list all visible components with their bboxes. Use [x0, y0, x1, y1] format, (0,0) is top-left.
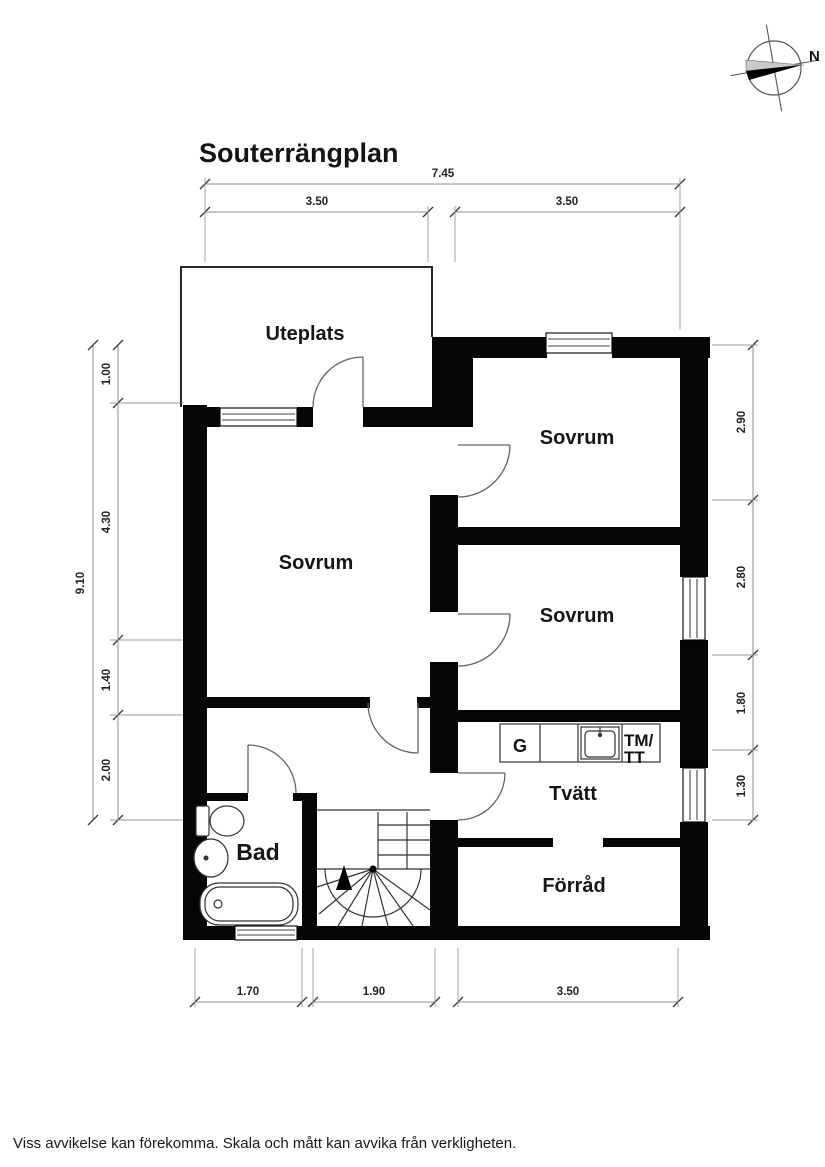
wall-segment: [458, 527, 680, 545]
wall-segment: [680, 337, 708, 577]
wall-segment: [432, 337, 547, 358]
stairs-winders: [317, 866, 430, 927]
window-uteplats: [220, 408, 297, 426]
dim-bottom-seg-2: 1.90: [363, 986, 385, 998]
wall-segment: [680, 640, 708, 768]
dim-right-seg-3: 1.80: [736, 692, 748, 714]
dimension-chain-bottom: 1.70 1.90 3.50: [190, 948, 683, 1007]
dim-top-left: 3.50: [306, 196, 328, 208]
washbasin: [194, 839, 228, 877]
window-sovrum-right: [683, 577, 705, 640]
window-tvatt-right: [683, 768, 705, 822]
laundry-fixtures: G TM/ TT: [500, 724, 660, 767]
dim-left-seg-1: 1.00: [101, 363, 113, 385]
compass-rose: N: [723, 17, 825, 119]
room-label-tvatt: Tvätt: [549, 783, 597, 805]
dim-left-seg-3: 1.40: [101, 669, 113, 691]
door-sovrum-top-right: [458, 445, 510, 497]
wall-segment: [363, 407, 432, 427]
dim-left-seg-2: 4.30: [101, 511, 113, 533]
disclaimer-text: Viss avvikelse kan förekomma. Skala och …: [13, 1135, 516, 1152]
wall-segment: [183, 926, 235, 940]
dim-left-seg-4: 2.00: [101, 759, 113, 781]
wall-segment: [458, 710, 680, 722]
dim-right-seg-1: 2.90: [736, 411, 748, 433]
room-label-sovrum-left: Sovrum: [279, 552, 353, 574]
floorplan-page: N Souterrängplan 7.45 3.50 3.50 9.10 1.0…: [0, 0, 825, 1167]
door-uteplats: [313, 357, 363, 407]
dim-left-total: 9.10: [75, 572, 87, 594]
door-tvatt: [458, 773, 505, 820]
dim-top-total: 7.45: [432, 168, 455, 180]
wall-segment: [680, 822, 708, 940]
toilet: [196, 806, 244, 836]
wall-segment: [302, 793, 317, 940]
dimension-chain-top: 7.45 3.50 3.50: [200, 168, 685, 330]
wall-segment: [417, 697, 430, 708]
wall-segment: [430, 662, 458, 773]
room-label-forrad: Förråd: [542, 874, 605, 897]
wall-segment: [297, 407, 313, 427]
laundry-sink: [581, 727, 619, 759]
wall-segment: [603, 838, 680, 847]
window-bad-bottom: [235, 926, 297, 940]
dim-top-right: 3.50: [556, 196, 578, 208]
bathtub: [200, 883, 298, 925]
floorplan-drawing: N Souterrängplan 7.45 3.50 3.50 9.10 1.0…: [0, 0, 825, 1167]
dim-right-seg-2: 2.80: [736, 566, 748, 588]
dryer-label: TT: [624, 748, 645, 767]
room-label-uteplats: Uteplats: [266, 323, 345, 345]
bathroom-fixtures: [194, 806, 298, 925]
door-sovrum-mid-right: [458, 614, 510, 666]
door-sovrum-left: [368, 703, 418, 753]
room-label-sovrum-mid-right: Sovrum: [540, 605, 614, 627]
dimension-chain-left: 9.10 1.00 4.30 1.40 2.00: [75, 340, 183, 825]
wall-segment: [430, 495, 458, 612]
dim-bottom-seg-1: 1.70: [237, 986, 259, 998]
wall-segment: [183, 697, 370, 708]
north-label: N: [809, 48, 820, 65]
wall-segment: [458, 838, 553, 847]
dimension-chain-right: 2.90 2.80 1.80 1.30: [712, 340, 758, 825]
page-title: Souterrängplan: [199, 138, 399, 168]
staircase: [317, 810, 430, 926]
room-label-bad: Bad: [236, 839, 279, 865]
cabinet-label: G: [513, 736, 527, 756]
room-label-sovrum-top-right: Sovrum: [540, 427, 614, 449]
window-sovrum-top: [546, 333, 612, 353]
wall-segment: [183, 407, 220, 427]
dim-right-seg-4: 1.30: [736, 775, 748, 797]
door-bad: [248, 745, 296, 793]
wall-segment: [297, 926, 710, 940]
wall-segment: [183, 793, 248, 801]
dim-bottom-seg-3: 3.50: [557, 986, 579, 998]
wall-segment: [430, 820, 458, 940]
